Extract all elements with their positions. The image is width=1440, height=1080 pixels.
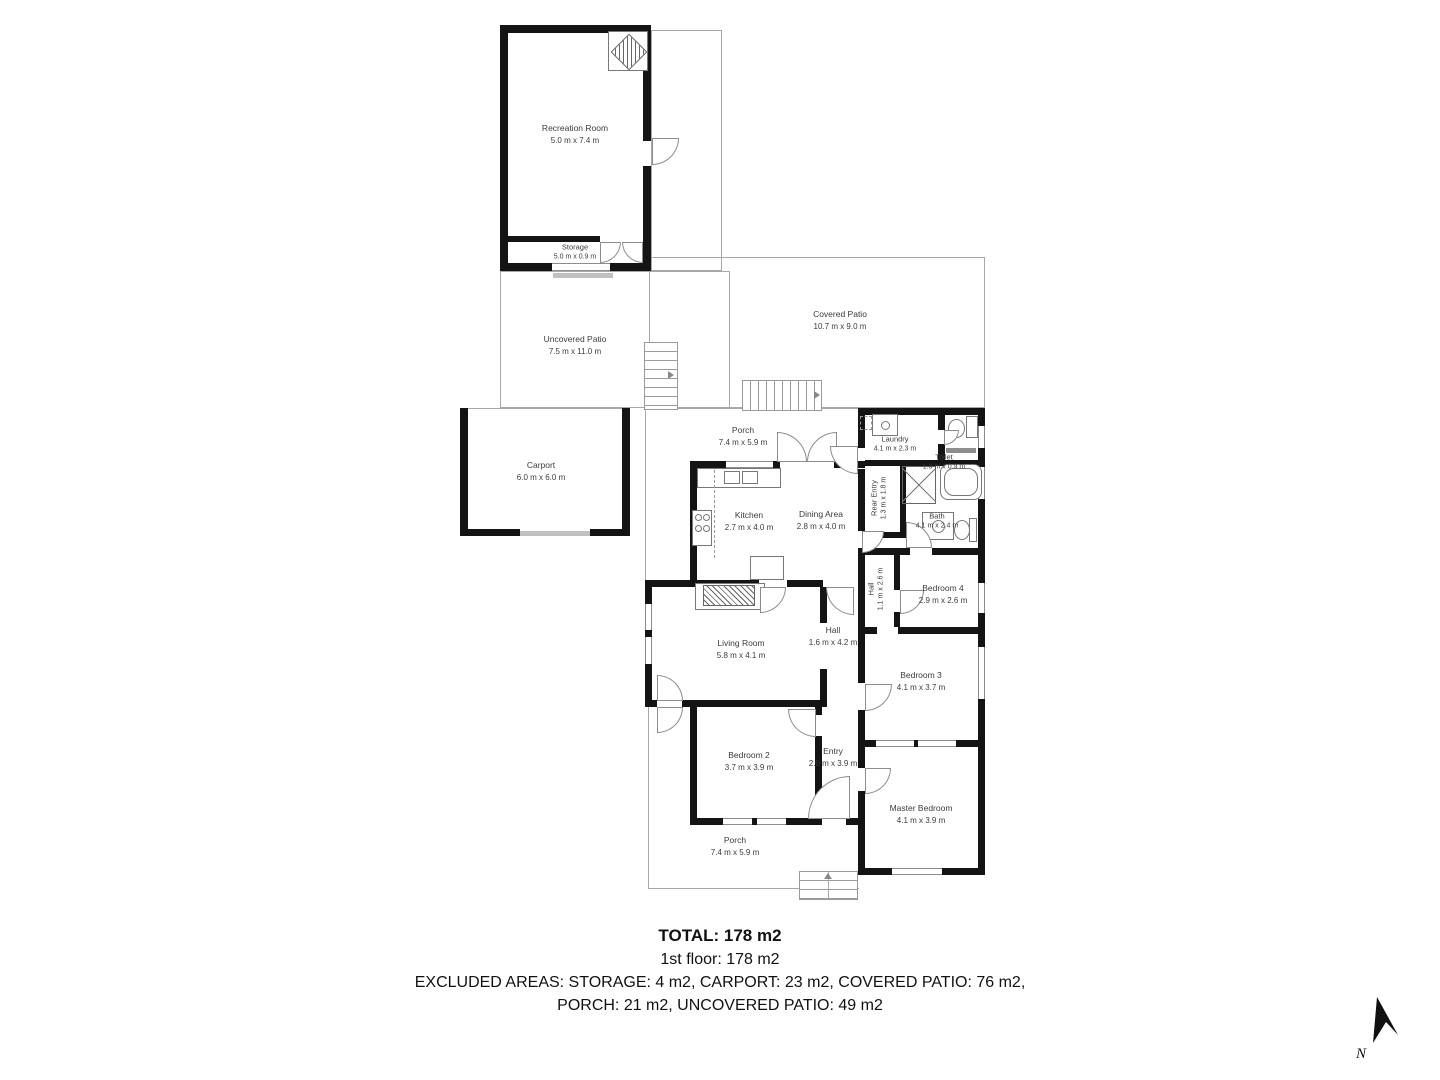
wall bbox=[858, 552, 865, 627]
wall bbox=[590, 529, 630, 536]
window bbox=[978, 583, 985, 613]
door-arc bbox=[826, 587, 854, 615]
room-label-storage: Storage 5.0 m x 0.9 m bbox=[554, 243, 596, 262]
kitchen-sink bbox=[724, 471, 740, 484]
room-label-uncovered-patio: Uncovered Patio 7.5 m x 11.0 m bbox=[544, 333, 607, 359]
room-label-bedroom3: Bedroom 3 4.1 m x 3.7 m bbox=[897, 669, 945, 695]
counter-dashed-line bbox=[714, 470, 715, 558]
porch-bottom-boundary bbox=[648, 702, 649, 889]
window bbox=[757, 818, 786, 825]
door-arc bbox=[865, 768, 891, 794]
laundry-sink-basin bbox=[881, 421, 890, 430]
window bbox=[918, 740, 956, 747]
window bbox=[726, 461, 773, 468]
window bbox=[645, 604, 652, 630]
room-label-entry: Entry 2.0 m x 3.9 m bbox=[809, 745, 857, 771]
carport-edge bbox=[468, 408, 622, 409]
stove-burner bbox=[695, 514, 702, 521]
wall bbox=[894, 552, 900, 590]
window bbox=[645, 637, 652, 664]
shower bbox=[902, 466, 936, 504]
stairs-direction-arrow bbox=[668, 371, 674, 379]
room-label-living-room: Living Room 5.8 m x 4.1 m bbox=[717, 637, 765, 663]
wall bbox=[787, 580, 823, 587]
wall bbox=[898, 627, 985, 634]
door-arc bbox=[600, 242, 621, 263]
bath-toilet-tank bbox=[969, 518, 977, 542]
door-arc bbox=[944, 430, 959, 445]
window bbox=[978, 426, 985, 448]
stove-burner bbox=[703, 525, 710, 532]
stove bbox=[692, 510, 712, 546]
window bbox=[876, 740, 914, 747]
door-arc bbox=[622, 242, 643, 263]
north-arrow: N bbox=[1338, 990, 1418, 1068]
toilet-tank bbox=[966, 416, 978, 438]
room-label-master-bedroom: Master Bedroom 4.1 m x 3.9 m bbox=[890, 802, 953, 828]
window bbox=[892, 868, 942, 875]
room-label-covered-patio: Covered Patio 10.7 m x 9.0 m bbox=[813, 308, 867, 334]
window bbox=[723, 818, 752, 825]
room-label-bedroom4: Bedroom 4 2.9 m x 2.6 m bbox=[919, 582, 967, 608]
wall bbox=[932, 548, 985, 555]
wall bbox=[500, 236, 600, 242]
laundry-sink bbox=[872, 414, 898, 436]
room-label-hall-small: Hall 1.1 m x 2.6 m bbox=[867, 568, 886, 610]
stairs bbox=[742, 380, 822, 411]
kitchen-island bbox=[750, 556, 784, 580]
door-arc bbox=[760, 587, 786, 613]
room-label-recreation-room: Recreation Room 5.0 m x 7.4 m bbox=[542, 122, 608, 148]
wall bbox=[643, 166, 651, 271]
door-arc bbox=[657, 707, 683, 733]
wall bbox=[682, 700, 827, 707]
room-label-porch-bottom: Porch 7.4 m x 5.9 m bbox=[711, 834, 759, 860]
north-label: N bbox=[1355, 1046, 1367, 1062]
door-arc bbox=[777, 432, 807, 462]
heater-box bbox=[608, 31, 648, 71]
area-summary: TOTAL: 178 m2 1st floor: 178 m2 EXCLUDED… bbox=[0, 926, 1440, 1020]
wall bbox=[858, 469, 865, 531]
bathtub-inner bbox=[944, 468, 978, 496]
wall bbox=[500, 25, 508, 271]
north-arrow-glyph bbox=[1373, 997, 1398, 1043]
wall bbox=[460, 529, 520, 536]
wall bbox=[622, 408, 630, 536]
wall bbox=[865, 627, 877, 634]
excluded-areas-text-line2: PORCH: 21 m2, UNCOVERED PATIO: 49 m2 bbox=[0, 997, 1440, 1015]
room-label-dining-area: Dining Area 2.8 m x 4.0 m bbox=[797, 508, 845, 534]
room-label-bath: Bath 4.1 m x 2.4 m bbox=[916, 512, 958, 531]
steps-direction-arrow bbox=[824, 873, 832, 879]
wall bbox=[894, 612, 900, 627]
wall bbox=[815, 707, 822, 715]
excluded-areas-text-line1: EXCLUDED AREAS: STORAGE: 4 m2, CARPORT: … bbox=[0, 974, 1440, 992]
wall bbox=[645, 700, 657, 707]
window bbox=[978, 647, 985, 699]
wall bbox=[938, 408, 945, 430]
room-label-bedroom2: Bedroom 2 3.7 m x 3.9 m bbox=[725, 749, 773, 775]
floor-plan: Recreation Room 5.0 m x 7.4 m Storage 5.… bbox=[0, 0, 1440, 1080]
wall bbox=[858, 710, 865, 768]
room-label-porch-top: Porch 7.4 m x 5.9 m bbox=[719, 424, 767, 450]
room-label-toilet: Toilet 1.3 m x 0.9 m bbox=[923, 453, 965, 472]
door-arc bbox=[788, 709, 816, 737]
porch-top-boundary bbox=[645, 408, 646, 582]
room-label-hall-main: Hall 1.6 m x 4.2 m bbox=[809, 624, 857, 650]
kitchen-sink bbox=[742, 471, 758, 484]
door-arc bbox=[865, 684, 892, 711]
wall bbox=[858, 627, 865, 683]
room-label-rear-entry: Rear Entry 1.3 m x 1.8 m bbox=[870, 477, 889, 519]
wall bbox=[820, 669, 827, 707]
total-area-text: TOTAL: 178 m2 bbox=[0, 926, 1440, 946]
room-label-kitchen: Kitchen 2.7 m x 4.0 m bbox=[725, 509, 773, 535]
stairs-direction-arrow bbox=[814, 391, 820, 399]
stove-burner bbox=[703, 514, 710, 521]
wall bbox=[460, 408, 468, 536]
door-mat bbox=[520, 531, 590, 536]
wall bbox=[690, 818, 817, 825]
stove-burner bbox=[695, 525, 702, 532]
heater-hatch bbox=[611, 34, 648, 71]
room-label-carport: Carport 6.0 m x 6.0 m bbox=[517, 459, 565, 485]
door-arc bbox=[657, 675, 683, 701]
door-mat bbox=[553, 273, 613, 278]
floor-area-text: 1st floor: 178 m2 bbox=[0, 951, 1440, 969]
door-arc bbox=[830, 446, 858, 474]
room-label-laundry: Laundry 4.1 m x 2.3 m bbox=[874, 435, 916, 454]
wall bbox=[846, 818, 858, 825]
fireplace bbox=[703, 585, 755, 606]
wall bbox=[690, 707, 697, 825]
window bbox=[552, 263, 610, 271]
wall bbox=[858, 791, 865, 875]
appliance-dashed bbox=[860, 416, 872, 430]
